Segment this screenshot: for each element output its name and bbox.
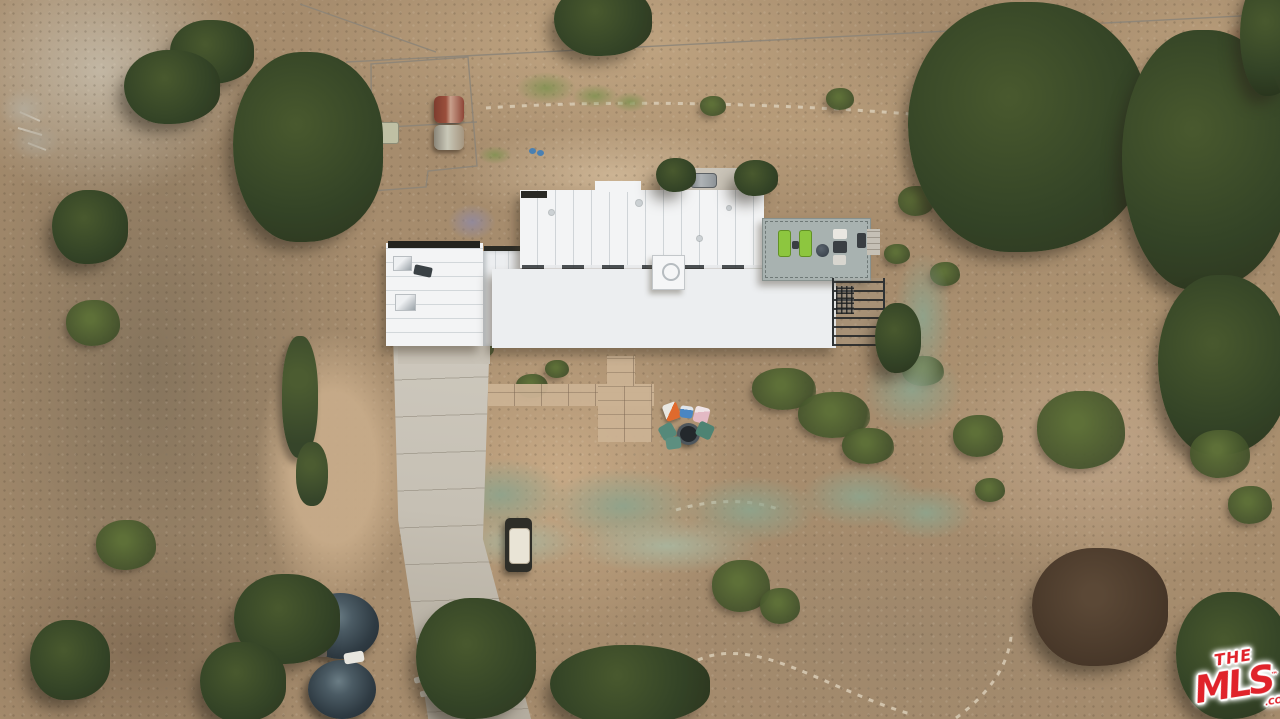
tree-canopy — [52, 190, 128, 264]
outdoor-chair-blue — [679, 405, 694, 419]
roof-dark-edge — [521, 191, 547, 198]
water-tank-2 — [308, 660, 376, 719]
bush-cluster — [1037, 391, 1125, 469]
outdoor-chair-orange — [662, 401, 682, 422]
rock-path-bottom-2 — [956, 637, 1011, 718]
tree-canopy — [908, 2, 1148, 252]
grass-patch — [572, 84, 618, 108]
garage-solar-edge — [388, 241, 480, 248]
tree-canopy — [734, 160, 778, 196]
tree-canopy — [554, 0, 652, 56]
tree-canopy — [233, 52, 383, 242]
lounge-chair-green — [778, 230, 791, 257]
grass-patch — [516, 72, 576, 104]
sage-shrubs — [878, 486, 974, 540]
grass-patch — [478, 146, 512, 164]
white-tarp — [343, 650, 365, 664]
dining-chair-dark — [833, 241, 847, 253]
bush — [884, 244, 910, 264]
paver-patio — [607, 356, 635, 386]
pergola-lattice — [836, 286, 854, 314]
deck-steps — [867, 229, 880, 255]
bush — [953, 415, 1003, 457]
skylight — [393, 256, 412, 271]
main-house-roof-upper — [520, 190, 764, 268]
tree-canopy — [656, 158, 696, 192]
dining-cushion — [833, 255, 846, 265]
fence-line-top — [346, 14, 1280, 62]
tree-canopy — [875, 303, 921, 373]
rock-pile — [10, 122, 62, 160]
driveway-apron — [398, 344, 490, 364]
mls-watermark-tm: ™ — [1271, 670, 1279, 679]
bush — [1190, 430, 1250, 478]
roof-bumpout — [595, 181, 641, 192]
shed-rust-roof — [434, 96, 464, 123]
tree-canopy — [416, 598, 536, 719]
roof-vent — [636, 200, 642, 206]
scrub-brown-mass — [1032, 548, 1168, 666]
tree-canopy — [30, 620, 110, 700]
dirt-parking-area — [256, 330, 411, 605]
bush — [66, 300, 120, 346]
bush — [96, 520, 156, 570]
rock-path-bottom-1 — [698, 653, 914, 715]
round-table — [816, 244, 829, 257]
bush — [975, 478, 1005, 502]
grill — [857, 233, 866, 248]
outdoor-chair-teal — [665, 436, 682, 450]
hedge-row — [282, 336, 318, 458]
roof-vent — [727, 206, 731, 210]
skylight — [395, 294, 416, 311]
chimney-cap — [662, 263, 680, 281]
roof-vent — [697, 236, 702, 241]
bush — [842, 428, 894, 464]
bush — [1228, 486, 1272, 524]
side-table — [792, 241, 799, 249]
bush — [700, 96, 726, 116]
blue-barrel — [537, 150, 544, 156]
paver-walkway — [598, 384, 652, 442]
agave — [545, 360, 569, 378]
bush — [826, 88, 854, 110]
dining-cushion — [833, 229, 847, 239]
fence-line-diagonal — [300, 4, 436, 52]
fountain-basin — [509, 528, 530, 564]
tree-canopy — [1158, 275, 1280, 455]
lavender-bush — [448, 204, 496, 240]
aerial-photo: THE MLS™ .COM — [0, 0, 1280, 719]
blue-barrel — [529, 148, 536, 154]
hedge-row — [296, 442, 328, 506]
tree-canopy — [550, 645, 710, 719]
shed-pale-roof — [434, 125, 464, 150]
bush — [760, 588, 800, 624]
grass-patch — [612, 92, 648, 112]
tree-canopy — [124, 50, 220, 124]
tree-canopy — [200, 642, 286, 719]
roof-vent — [549, 210, 554, 215]
lounge-chair-green — [799, 230, 812, 257]
